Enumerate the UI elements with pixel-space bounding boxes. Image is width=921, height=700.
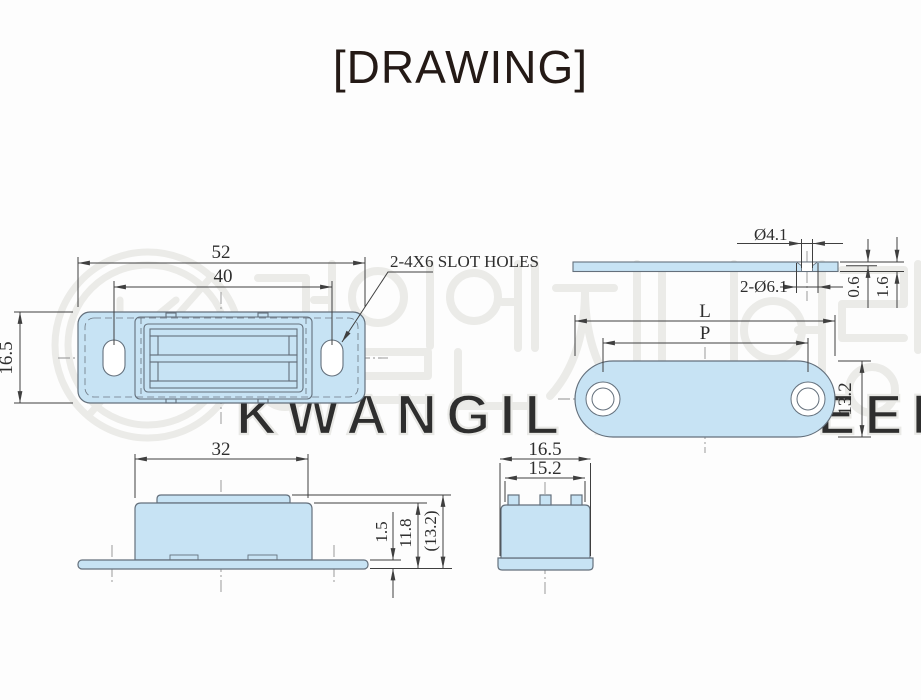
- dim-plate-length: L: [699, 301, 711, 322]
- dim-plate-hole: Ø4.1: [754, 225, 788, 244]
- drawing-sheet: KWANGIL ENGINEERING [DRAWING]: [0, 0, 921, 700]
- drawing-views: 52 40 16.5 2-4X6 SLOT HOLES: [0, 0, 921, 700]
- catch-base-plate: [78, 560, 368, 569]
- dim-plan-pitch: 40: [214, 266, 233, 287]
- dim-side-base: 1.5: [372, 521, 391, 542]
- dim-end-inner: 15.2: [528, 458, 561, 479]
- plate-side-view: Ø4.1 2-Ø6.1 0.6 1.6: [573, 225, 904, 308]
- end-body: [501, 505, 590, 558]
- dim-plate-thickness: 1.6: [873, 276, 892, 297]
- plate-plan-view: L P 13.2: [558, 301, 871, 453]
- slot-holes-note: 2-4X6 SLOT HOLES: [390, 252, 539, 271]
- end-tab: [571, 495, 582, 505]
- end-view: 16.5 15.2: [498, 439, 593, 596]
- dim-plan-height: 16.5: [0, 341, 17, 374]
- end-tab: [508, 495, 519, 505]
- dim-side-body-height: 11.8: [396, 518, 415, 547]
- end-base: [498, 558, 593, 570]
- dim-plan-width: 52: [212, 242, 231, 263]
- dim-plate-width: 13.2: [835, 382, 856, 415]
- dim-plate-csk-depth: 0.6: [844, 276, 863, 297]
- slot-hole-right: [321, 340, 343, 376]
- dim-plate-countersink: 2-Ø6.1: [740, 277, 788, 296]
- slot-hole-left: [103, 340, 125, 376]
- dim-side-total-height: (13.2): [421, 510, 440, 551]
- catch-cap: [157, 495, 290, 503]
- end-tab: [540, 495, 551, 505]
- side-view: 32 1.5 11.8 (13.2): [78, 439, 452, 598]
- catch-body: [135, 503, 312, 560]
- dim-plate-pitch: P: [700, 323, 711, 344]
- dim-side-width: 32: [212, 439, 231, 460]
- dim-end-outer: 16.5: [528, 439, 561, 460]
- plan-view: 52 40 16.5 2-4X6 SLOT HOLES: [0, 242, 539, 424]
